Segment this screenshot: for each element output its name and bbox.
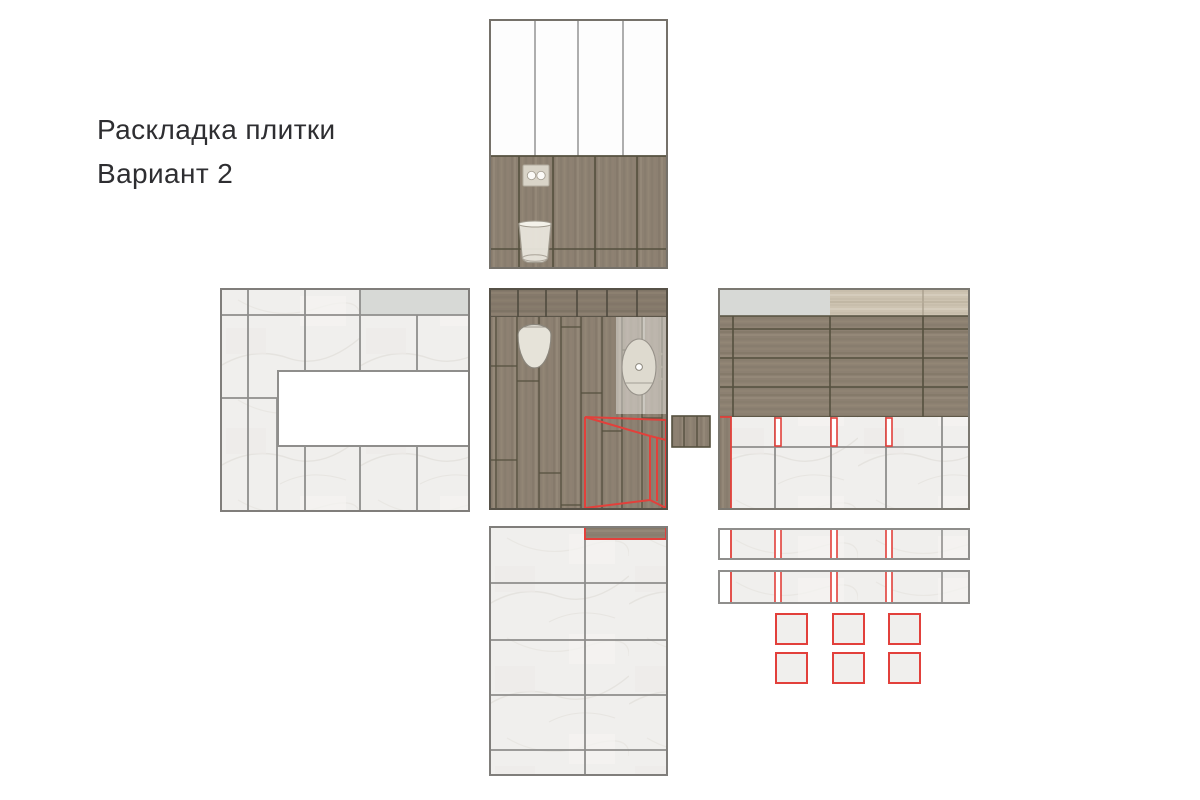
gray-accent-strip [718,288,830,316]
white-tile-grid [489,19,668,156]
top-wall-elevation [489,19,668,269]
top-wood-strip [489,288,668,317]
flush-plate [523,165,549,186]
wood-cut-strip-highlight [585,527,666,539]
cut-tile-square [888,613,921,645]
red-cut-strip [719,529,731,559]
tile-field [489,526,668,776]
title-line-2: Вариант 2 [97,152,336,196]
cut-tile-row [718,528,970,560]
floor-tile-layout [489,526,668,776]
cut-tile-square [888,652,921,684]
cut-tile-square [832,652,865,684]
wood-area [489,156,668,269]
cut-tile-square [775,613,808,645]
cut-tile-row [718,570,970,604]
niche-cutout [278,371,470,446]
bottom-tile-rows [718,417,970,510]
right-wall-elevation [718,288,970,510]
gray-accent-strip [360,288,470,315]
red-cut-strip [719,571,731,603]
light-wood-strip [830,288,970,316]
wall-hung-toilet-front [519,221,551,263]
center-floor-plan [489,288,714,510]
left-wall-elevation [220,288,470,512]
page-title: Раскладка плитки Вариант 2 [97,108,336,196]
faucet-dot [636,364,643,371]
cut-tile-square [832,613,865,645]
tile-layout-sheet: Раскладка плитки Вариант 2 [0,0,1200,800]
side-wood-tab [672,416,710,447]
wood-panel-grid [489,156,668,269]
sink-counter [616,317,668,414]
title-line-1: Раскладка плитки [97,108,336,152]
horizontal-wood-planks [718,316,970,417]
cut-tile-square [775,652,808,684]
